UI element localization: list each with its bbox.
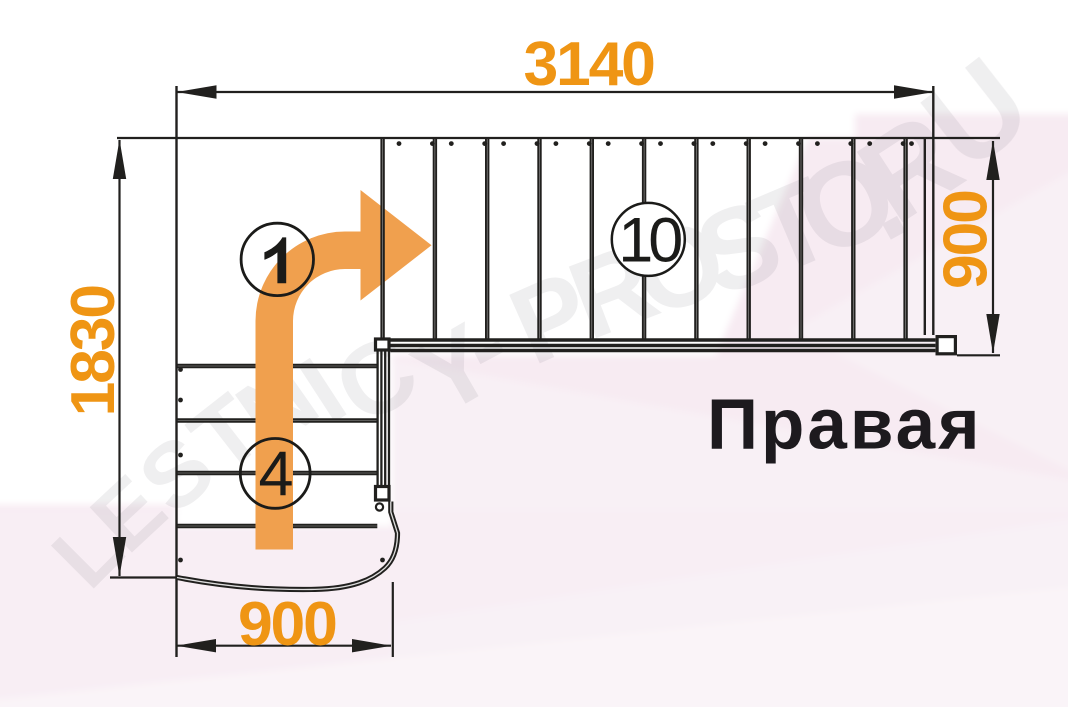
svg-text:4: 4: [258, 440, 293, 510]
svg-text:Правая: Правая: [707, 386, 983, 465]
svg-text:3140: 3140: [524, 29, 655, 99]
svg-text:900: 900: [238, 589, 336, 659]
svg-text:900: 900: [931, 191, 1001, 289]
svg-text:10: 10: [618, 206, 681, 276]
svg-text:1830: 1830: [58, 286, 128, 417]
